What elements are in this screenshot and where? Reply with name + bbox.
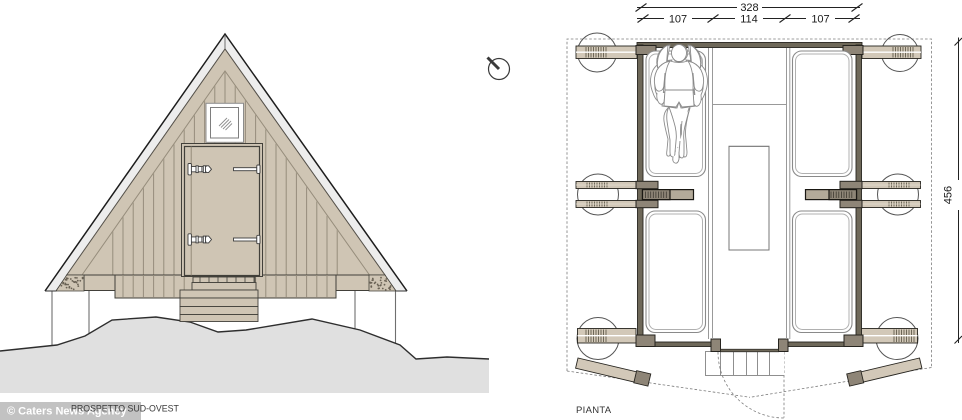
svg-text:PROSPETTO SUD-OVEST: PROSPETTO SUD-OVEST	[71, 404, 179, 414]
svg-text:328: 328	[740, 2, 758, 14]
svg-text:107: 107	[811, 14, 829, 26]
svg-text:PIANTA: PIANTA	[576, 405, 612, 416]
svg-text:456: 456	[943, 186, 955, 204]
svg-text:114: 114	[740, 14, 758, 26]
svg-text:107: 107	[669, 14, 687, 26]
